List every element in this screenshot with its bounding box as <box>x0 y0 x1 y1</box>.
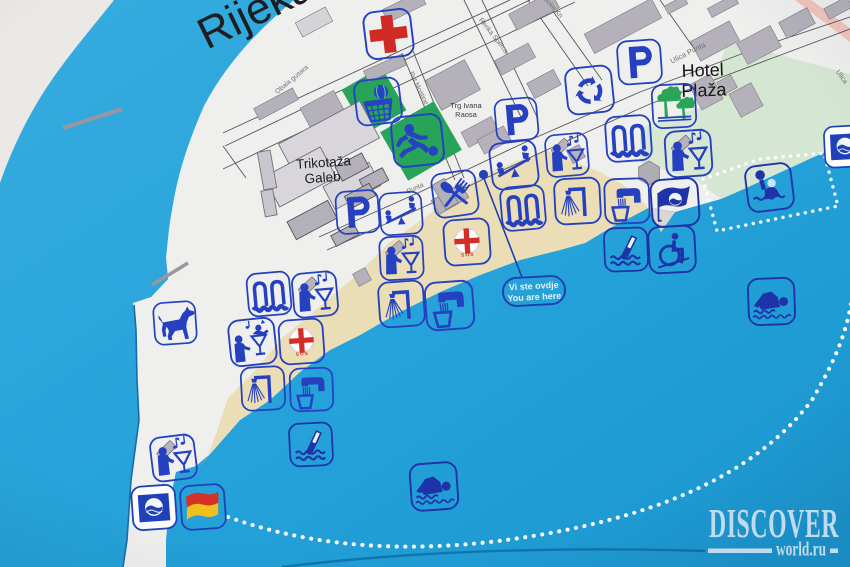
svg-text:world.ru: world.ru <box>776 539 826 561</box>
